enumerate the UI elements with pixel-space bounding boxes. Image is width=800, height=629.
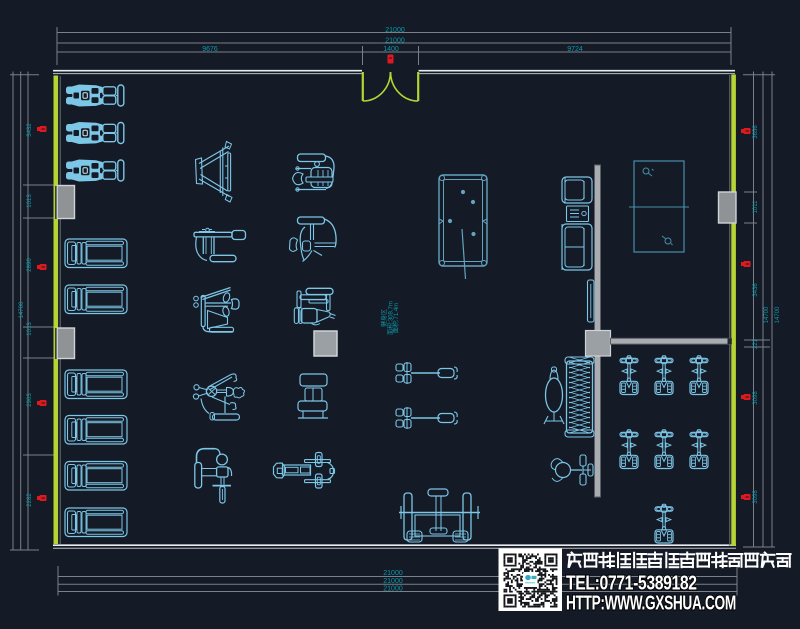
svg-text:21000: 21000 [383,578,403,585]
svg-text:1013: 1013 [27,194,33,208]
svg-text:221: 221 [753,338,759,349]
svg-text:2903: 2903 [27,393,33,407]
svg-text:9676: 9676 [202,46,218,53]
svg-text:健身区: 健身区 [380,309,388,327]
svg-text:2282: 2282 [27,493,33,507]
svg-text:HTTP:WWW.GXSHUA.COM: HTTP:WWW.GXSHUA.COM [566,591,736,614]
svg-text:1013: 1013 [27,322,33,336]
svg-text:21000: 21000 [385,37,405,44]
svg-text:21000: 21000 [383,570,403,577]
svg-text:1011: 1011 [753,200,759,214]
svg-text:3098: 3098 [753,490,759,504]
svg-text:14700: 14700 [775,306,781,323]
svg-text:3656: 3656 [753,125,759,139]
svg-text:14700: 14700 [764,306,770,323]
svg-text:3432: 3432 [27,123,33,137]
svg-text:2896: 2896 [27,258,33,272]
svg-text:面积:71.4m: 面积:71.4m [392,303,400,333]
svg-text:3436: 3436 [753,283,759,297]
svg-text:3098: 3098 [753,391,759,405]
svg-text:9724: 9724 [567,46,583,53]
svg-text:1400: 1400 [383,46,399,53]
svg-text:21000: 21000 [385,27,405,34]
svg-text:14700: 14700 [19,301,25,318]
svg-text:21000: 21000 [383,585,403,592]
